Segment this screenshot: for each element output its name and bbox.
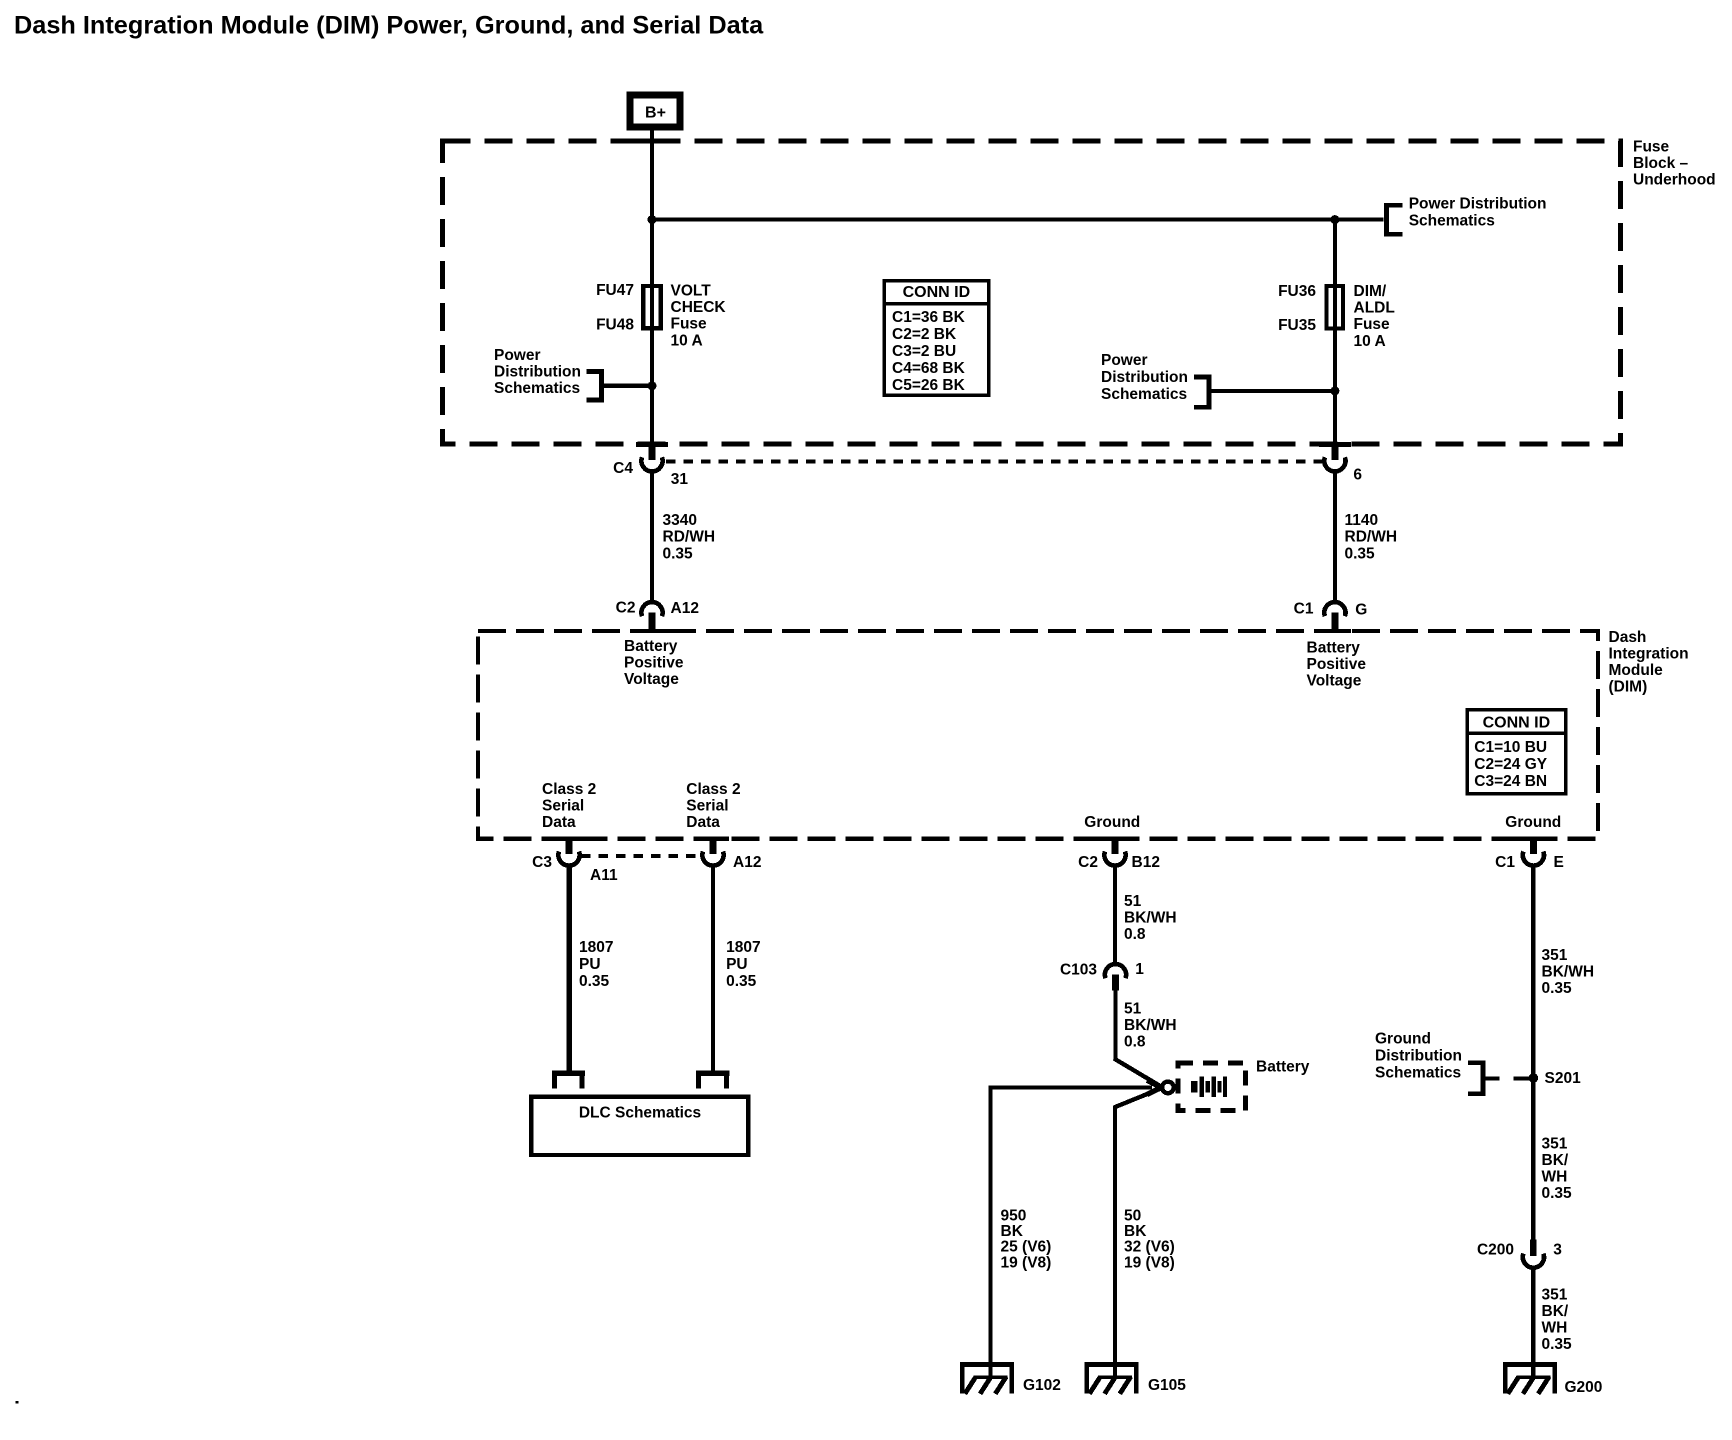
svg-text:C2=24 GY: C2=24 GY bbox=[1474, 756, 1547, 773]
svg-text:Voltage: Voltage bbox=[624, 671, 679, 688]
svg-text:BK/: BK/ bbox=[1542, 1303, 1569, 1320]
svg-text:BK: BK bbox=[1001, 1223, 1024, 1240]
svg-text:C200: C200 bbox=[1477, 1242, 1514, 1259]
svg-text:G: G bbox=[1355, 602, 1367, 619]
svg-text:E: E bbox=[1554, 854, 1564, 871]
svg-text:Underhood: Underhood bbox=[1633, 172, 1716, 189]
svg-text:Distribution: Distribution bbox=[1101, 369, 1188, 386]
svg-text:C2: C2 bbox=[616, 600, 636, 617]
svg-text:32 (V6): 32 (V6) bbox=[1124, 1239, 1175, 1256]
svg-text:19 (V8): 19 (V8) bbox=[1001, 1254, 1052, 1271]
svg-text:C1=10 BU: C1=10 BU bbox=[1474, 739, 1547, 756]
svg-text:Fuse: Fuse bbox=[1354, 316, 1391, 333]
svg-text:Dash Integration Module (DIM): Dash Integration Module (DIM) Power, Gro… bbox=[14, 12, 764, 40]
svg-text:G102: G102 bbox=[1023, 1377, 1061, 1394]
svg-text:19 (V8): 19 (V8) bbox=[1124, 1254, 1175, 1271]
svg-text:C3: C3 bbox=[532, 854, 552, 871]
svg-text:FU35: FU35 bbox=[1278, 317, 1316, 334]
svg-text:0.35: 0.35 bbox=[579, 973, 610, 990]
svg-text:WH: WH bbox=[1542, 1169, 1568, 1186]
svg-text:Module: Module bbox=[1609, 662, 1664, 679]
svg-text:6: 6 bbox=[1353, 467, 1362, 484]
svg-text:A12: A12 bbox=[671, 600, 699, 617]
svg-text:A12: A12 bbox=[733, 854, 761, 871]
svg-text:Distribution: Distribution bbox=[494, 363, 581, 380]
svg-text:Battery: Battery bbox=[1307, 640, 1361, 657]
svg-text:PU: PU bbox=[726, 956, 748, 973]
svg-text:C103: C103 bbox=[1060, 962, 1097, 979]
svg-text:Class 2: Class 2 bbox=[542, 781, 596, 798]
svg-text:FU47: FU47 bbox=[596, 282, 634, 299]
svg-text:0.8: 0.8 bbox=[1124, 1034, 1146, 1051]
svg-text:351: 351 bbox=[1542, 1136, 1568, 1153]
svg-text:FU36: FU36 bbox=[1278, 283, 1316, 300]
svg-text:1: 1 bbox=[1135, 961, 1144, 978]
svg-text:0.35: 0.35 bbox=[1542, 1336, 1573, 1353]
svg-text:VOLT: VOLT bbox=[671, 283, 712, 300]
svg-text:BK/WH: BK/WH bbox=[1124, 910, 1177, 927]
svg-text:RD/WH: RD/WH bbox=[663, 529, 716, 546]
svg-text:Serial: Serial bbox=[542, 798, 584, 815]
svg-text:C1=36 BK: C1=36 BK bbox=[892, 309, 966, 326]
svg-text:B12: B12 bbox=[1132, 854, 1160, 871]
svg-text:BK/: BK/ bbox=[1542, 1152, 1569, 1169]
svg-text:31: 31 bbox=[671, 471, 689, 488]
svg-text:0.35: 0.35 bbox=[1345, 545, 1376, 562]
svg-text:Fuse: Fuse bbox=[1633, 139, 1670, 156]
svg-text:C4: C4 bbox=[613, 460, 633, 477]
svg-text:RD/WH: RD/WH bbox=[1345, 529, 1398, 546]
svg-text:Dash: Dash bbox=[1609, 629, 1647, 646]
svg-text:1140: 1140 bbox=[1345, 512, 1379, 529]
svg-text:C2: C2 bbox=[1078, 854, 1098, 871]
svg-text:950: 950 bbox=[1001, 1208, 1027, 1225]
svg-text:C2=2 BK: C2=2 BK bbox=[892, 326, 957, 343]
svg-text:0.35: 0.35 bbox=[1542, 1185, 1573, 1202]
svg-text:Integration: Integration bbox=[1609, 646, 1689, 663]
svg-text:Power: Power bbox=[1101, 352, 1148, 369]
svg-text:10 A: 10 A bbox=[671, 332, 703, 349]
svg-text:Power Distribution: Power Distribution bbox=[1409, 196, 1547, 213]
svg-text:Positive: Positive bbox=[1307, 656, 1367, 673]
svg-text:Battery: Battery bbox=[1256, 1059, 1310, 1076]
svg-text:C1: C1 bbox=[1294, 601, 1314, 618]
svg-text:Data: Data bbox=[686, 814, 720, 831]
svg-text:C1: C1 bbox=[1495, 854, 1515, 871]
svg-text:FU48: FU48 bbox=[596, 317, 634, 334]
svg-text:Schematics: Schematics bbox=[1101, 386, 1187, 403]
svg-text:0.35: 0.35 bbox=[726, 973, 757, 990]
svg-text:CONN ID: CONN ID bbox=[1483, 715, 1551, 732]
svg-text:1807: 1807 bbox=[579, 939, 613, 956]
svg-text:C5=26 BK: C5=26 BK bbox=[892, 377, 966, 394]
svg-text:G200: G200 bbox=[1565, 1379, 1603, 1396]
svg-text:Ground: Ground bbox=[1375, 1031, 1431, 1048]
svg-text:Distribution: Distribution bbox=[1375, 1048, 1462, 1065]
svg-text:Ground: Ground bbox=[1084, 814, 1140, 831]
svg-text:Class 2: Class 2 bbox=[686, 781, 740, 798]
svg-text:Schematics: Schematics bbox=[1375, 1065, 1461, 1082]
svg-text:Power: Power bbox=[494, 347, 541, 364]
svg-text:C4=68 BK: C4=68 BK bbox=[892, 360, 966, 377]
svg-text:A11: A11 bbox=[590, 867, 618, 884]
svg-text:10 A: 10 A bbox=[1354, 333, 1386, 350]
svg-text:50: 50 bbox=[1124, 1208, 1141, 1225]
svg-text:Fuse: Fuse bbox=[671, 316, 708, 333]
svg-text:(DIM): (DIM) bbox=[1609, 679, 1648, 696]
svg-text:Schematics: Schematics bbox=[1409, 213, 1495, 230]
svg-text:B+: B+ bbox=[645, 105, 666, 122]
svg-text:CONN ID: CONN ID bbox=[903, 284, 971, 301]
svg-text:C3=24 BN: C3=24 BN bbox=[1474, 773, 1547, 790]
svg-text:51: 51 bbox=[1124, 1001, 1142, 1018]
svg-text:PU: PU bbox=[579, 956, 601, 973]
svg-text:3: 3 bbox=[1553, 1242, 1562, 1259]
svg-text:Block –: Block – bbox=[1633, 155, 1689, 172]
svg-text:C3=2 BU: C3=2 BU bbox=[892, 343, 956, 360]
svg-text:25 (V6): 25 (V6) bbox=[1001, 1239, 1052, 1256]
svg-text:WH: WH bbox=[1542, 1320, 1568, 1337]
svg-text:BK/WH: BK/WH bbox=[1542, 964, 1595, 981]
svg-text:0.8: 0.8 bbox=[1124, 926, 1146, 943]
svg-text:0.35: 0.35 bbox=[1542, 980, 1573, 997]
svg-text:Positive: Positive bbox=[624, 654, 684, 671]
svg-text:1807: 1807 bbox=[726, 939, 760, 956]
svg-text:DLC Schematics: DLC Schematics bbox=[579, 1105, 701, 1122]
svg-text:S201: S201 bbox=[1545, 1070, 1582, 1087]
svg-text:Data: Data bbox=[542, 814, 576, 831]
svg-text:DIM/: DIM/ bbox=[1354, 283, 1387, 300]
svg-text:Ground: Ground bbox=[1505, 814, 1561, 831]
svg-text:BK/WH: BK/WH bbox=[1124, 1017, 1177, 1034]
svg-text:ALDL: ALDL bbox=[1354, 300, 1395, 317]
svg-text:Battery: Battery bbox=[624, 638, 678, 655]
svg-text:G105: G105 bbox=[1148, 1377, 1186, 1394]
svg-text:3340: 3340 bbox=[663, 512, 697, 529]
svg-text:CHECK: CHECK bbox=[671, 299, 727, 316]
svg-text:Schematics: Schematics bbox=[494, 380, 580, 397]
svg-text:351: 351 bbox=[1542, 947, 1568, 964]
svg-text:BK: BK bbox=[1124, 1223, 1147, 1240]
svg-text:Serial: Serial bbox=[686, 798, 728, 815]
svg-text:Voltage: Voltage bbox=[1307, 673, 1362, 690]
svg-text:351: 351 bbox=[1542, 1287, 1568, 1304]
svg-text:51: 51 bbox=[1124, 893, 1142, 910]
svg-text:0.35: 0.35 bbox=[663, 545, 694, 562]
